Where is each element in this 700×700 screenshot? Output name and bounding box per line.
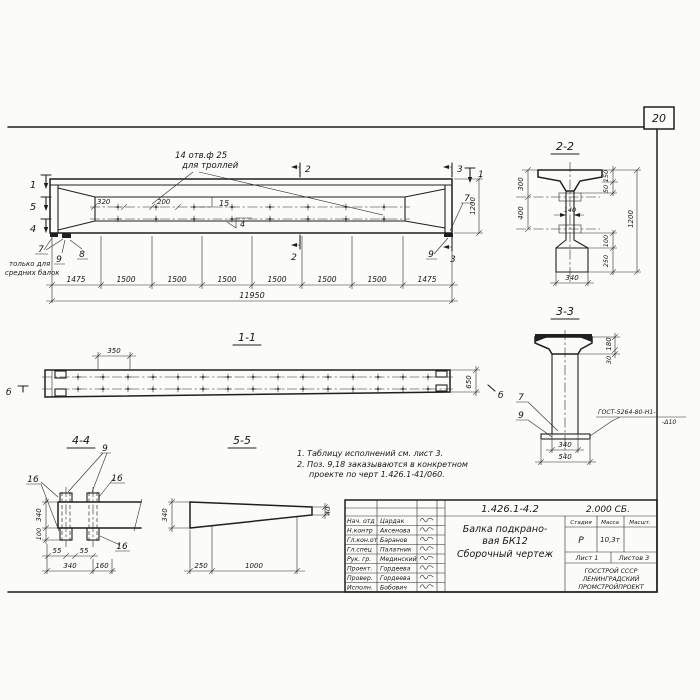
cut-markers-left: 1 5 4 (30, 175, 51, 235)
sig-role: Исполн. (347, 585, 373, 592)
sig-role: Н.контр (347, 528, 373, 535)
note-line-3: проекте по черт 1.426.1-41/060. (309, 470, 445, 479)
dimension-chain: 1475 1500 1500 1500 1500 1500 1500 1475 … (46, 236, 458, 304)
signature-rows: Нач. отд Цардак Н.контр Аксенова Гл.кон.… (347, 518, 433, 592)
holes-note-line2: для троллей (181, 161, 239, 171)
cut-marker-1-right: 1 (478, 170, 484, 180)
sig-role: Проект. (347, 566, 373, 573)
dim-1200: 1200 (469, 197, 477, 215)
dim-1000: 1000 (245, 562, 263, 570)
dim-150: 150 (602, 170, 610, 182)
sig-name: Мединский (380, 556, 417, 563)
weld-note-line1: ГОСТ-5264-80-Н1- (598, 409, 656, 416)
view-1-1-title: 1-1 (238, 331, 256, 344)
pos-16-a: 16 (27, 475, 39, 485)
sig-role: Гл.спец (347, 547, 372, 554)
end-plate (55, 389, 66, 396)
section-2-2: 2-2 300 400 150 50 100 250 1200 140 340 (516, 140, 641, 286)
pos-7-section: 7 (518, 393, 524, 403)
dim-total-length: 11950 (239, 291, 264, 300)
chain-dim: 1500 (217, 275, 236, 284)
dim-250: 250 (194, 562, 208, 570)
plan-holes (75, 374, 431, 392)
stage-value: Р (578, 536, 584, 546)
doc-number: 1.426.1-4.2 (481, 504, 539, 515)
chain-dim: 1475 (66, 275, 85, 284)
end-plate (436, 385, 447, 391)
sheets-label: Листов 3 (618, 554, 649, 562)
dim-55-a: 55 (53, 547, 62, 555)
dim-300: 300 (517, 177, 525, 191)
sig-name: Бобович (380, 584, 407, 592)
signature-mark (420, 537, 433, 541)
mass-value: 10,3т (600, 536, 621, 544)
dim-160: 160 (95, 562, 109, 570)
sig-name: Палатник (380, 547, 412, 554)
marker-b-right: б (498, 391, 504, 401)
dim-55-b: 55 (80, 547, 89, 555)
cut-marker-2-top: 2 (305, 165, 311, 175)
dim-1200-section: 1200 (627, 210, 635, 228)
signature-mark (420, 528, 433, 532)
pos-9-44: 9 (102, 444, 108, 454)
holes-note-line1: 14 отв.ф 25 (175, 151, 227, 161)
sig-name: Цардак (380, 518, 405, 525)
chain-dim: 1500 (116, 275, 135, 284)
sig-role: Гл.кон.от (347, 537, 378, 544)
cut-marker-2-bottom: 2 (291, 253, 297, 263)
dim-40: 40 (324, 507, 332, 515)
cut-marker-4: 4 (30, 224, 36, 235)
flange-outline (535, 337, 592, 354)
product-title-line2: вая БК12 (482, 536, 528, 547)
cut-marker-3-bottom: 3 (450, 255, 456, 265)
weld-note-line2: -Δ10 (662, 419, 676, 426)
bottom-chord-band (58, 502, 141, 528)
chain-dim: 1500 (267, 275, 286, 284)
pos-9-left: 9 (56, 255, 62, 265)
col-mass: Масса (601, 520, 619, 526)
pos-15: 15 (219, 199, 229, 208)
chain-dim: 1500 (167, 275, 186, 284)
sig-name: Баранов (380, 537, 408, 544)
sig-name: Гордеева (380, 575, 411, 582)
cut-marker-3-top: 3 (457, 165, 463, 175)
section-4-4-title: 4-4 (72, 434, 90, 447)
beam-outline (50, 179, 452, 233)
sheet-label: Лист 1 (575, 554, 599, 562)
section-4-4: 4-4 16 9 16 16 340 100 55 55 340 160 (26, 434, 142, 574)
marker-b-left: б (6, 388, 12, 398)
pos-7-left: 7 (38, 245, 44, 255)
hole-centerlines (90, 207, 410, 219)
cut-marker-5: 5 (30, 202, 36, 213)
pos-8: 8 (79, 250, 85, 260)
doc-code: 2.000 СБ. (586, 505, 630, 515)
section-3-3-title: 3-3 (556, 305, 574, 318)
dim-100: 100 (602, 235, 610, 247)
dim-340-bottom: 340 (63, 562, 77, 570)
view-1-1: 1-1 350 650 б б (6, 331, 504, 401)
dim-320: 320 (97, 198, 111, 206)
dim-340-55: 340 (161, 508, 169, 522)
section-5-5-title: 5-5 (233, 434, 251, 447)
page-number: 20 (652, 112, 666, 125)
section-2-2-title: 2-2 (556, 140, 574, 153)
dim-540-outer: 540 (558, 453, 572, 461)
dim-50: 50 (602, 185, 610, 193)
dim-400: 400 (517, 206, 525, 220)
engineering-drawing-sheet: 20 14 отв.ф 25 для троллей 1 5 4 2 2 (0, 0, 700, 700)
sig-role: Рук. гр. (347, 556, 371, 563)
signature-mark (420, 556, 433, 560)
sig-role: Нач. отд (347, 518, 375, 525)
dim-200: 200 (157, 198, 171, 206)
note-line-2: 2. Поз. 9,18 заказываются в конкретном (297, 460, 468, 469)
dim-340-left: 340 (35, 508, 43, 522)
dim-650: 650 (465, 375, 473, 389)
beam-inner-lines (50, 185, 452, 233)
signature-mark (420, 547, 433, 551)
chain-dim: 1475 (417, 275, 436, 284)
dim-340: 340 (565, 274, 579, 282)
signature-mark (420, 585, 433, 589)
dim-140: 140 (564, 206, 576, 214)
dim-350: 350 (107, 347, 121, 355)
web-and-bottom-block (556, 191, 588, 272)
dim-100-left: 100 (35, 528, 43, 540)
col-stage: Стадия (570, 520, 592, 526)
pos-16-b: 16 (111, 474, 123, 484)
signature-mark (420, 575, 433, 579)
signature-mark (420, 518, 433, 522)
taper-plate (190, 502, 312, 528)
dim-340-inner: 340 (558, 441, 572, 449)
title-block: 1.426.1-4.2 2.000 СБ. Нач. отд Цардак Н.… (345, 500, 657, 592)
pos-9-section: 9 (518, 411, 524, 421)
sig-role: Провер. (347, 575, 373, 582)
pos-16-c: 16 (116, 542, 128, 552)
break-line (134, 499, 142, 531)
end-plate (436, 371, 447, 377)
main-elevation-view: 14 отв.ф 25 для троллей 1 5 4 2 2 3 3 1 … (5, 151, 484, 304)
plan-outline (45, 370, 450, 397)
sig-name: Гордеева (380, 566, 411, 573)
product-title-line3: Сборочный чертеж (457, 549, 554, 560)
section-3-3: 3-3 180 30 7 9 ГОСТ-5264-80-Н1- -Δ10 340… (516, 305, 686, 465)
col-scale: Масшт. (629, 520, 651, 526)
chain-dim: 1500 (317, 275, 336, 284)
cut-marker-1: 1 (30, 180, 36, 191)
product-title-line1: Балка подкрано- (463, 524, 548, 535)
signature-mark (420, 566, 433, 570)
dim-30: 30 (605, 356, 613, 364)
org-line2: ЛЕНИНГРАДСКИЙ (582, 574, 640, 583)
notes: 1. Таблицу исполнений см. лист 3. 2. Поз… (297, 449, 468, 479)
dim-180: 180 (605, 337, 613, 351)
dim-250: 250 (602, 255, 610, 267)
note-mid-beams-1: только для (9, 260, 50, 268)
chain-dim: 1500 (367, 275, 386, 284)
org-line1: ГОССТРОЙ СССР (585, 566, 638, 575)
sig-name: Аксенова (379, 528, 411, 535)
org-line3: ПРОМСТРОЙПРОЕКТ (578, 582, 644, 591)
pos-9-right: 9 (428, 250, 434, 260)
pos-4: 4 (240, 220, 245, 229)
note-line-1: 1. Таблицу исполнений см. лист 3. (297, 449, 443, 458)
